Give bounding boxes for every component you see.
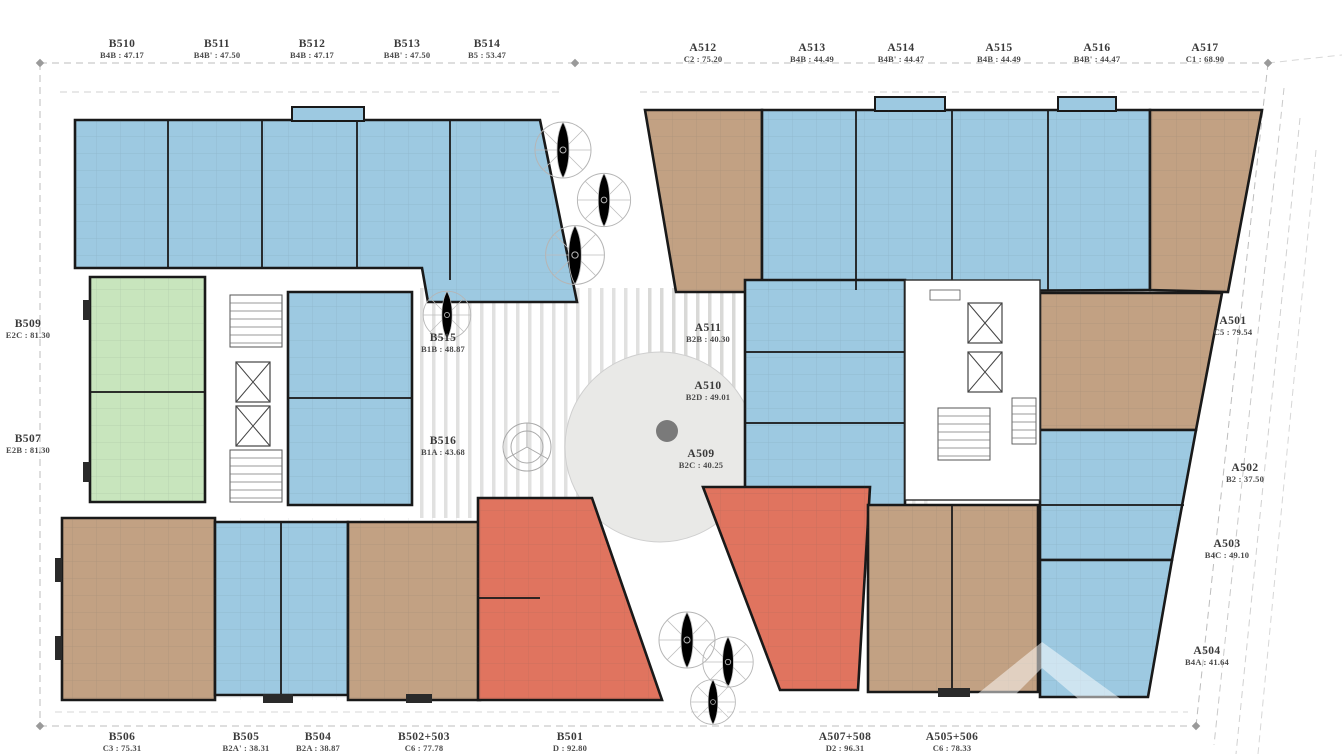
unit-id: B510: [100, 38, 144, 51]
unit-id: B512: [290, 38, 334, 51]
unit-id: B511: [194, 38, 241, 51]
unit-id: A514: [878, 42, 925, 55]
right-core: [905, 280, 1040, 500]
unit-id: A511: [686, 322, 730, 335]
unit-label-b515: B515 B1B : 48.87: [421, 332, 465, 354]
unit-id: A513: [790, 42, 834, 55]
unit-spec: B2B : 40.30: [686, 335, 730, 345]
unit-label-b505: B505 B2A' : 38.31: [222, 731, 269, 753]
unit-id: B516: [421, 435, 465, 448]
unit-id: A516: [1074, 42, 1121, 55]
unit-spec: B1B : 48.87: [421, 345, 465, 355]
unit-spec: C6 : 78.33: [926, 744, 979, 754]
unit-label-b512: B512 B4B : 47.17: [290, 38, 334, 60]
unit-spec: B2D : 49.01: [686, 393, 730, 403]
unit-label-a509: A509 B2C : 40.25: [679, 448, 723, 470]
unit-label-b510: B510 B4B : 47.17: [100, 38, 144, 60]
unit-label-b504: B504 B2A : 38.87: [296, 731, 340, 753]
unit-label-a511: A511 B2B : 40.30: [686, 322, 730, 344]
unit-label-a517: A517 C1 : 68.90: [1186, 42, 1225, 64]
balcony-bump: [292, 107, 364, 121]
unit-id: A503: [1205, 538, 1249, 551]
unit-spec: B2A' : 38.31: [222, 744, 269, 754]
unit-spec: B4B' : 47.50: [384, 51, 431, 61]
unit-spec: B4B' : 44.47: [1074, 55, 1121, 65]
balcony-bump: [875, 97, 945, 111]
unit-label-a502: A502 B2 : 37.50: [1226, 462, 1264, 484]
unit-label-b506: B506 C3 : 75.31: [103, 731, 142, 753]
unit-spec: B2 : 37.50: [1226, 475, 1264, 485]
plaza-dot: [656, 420, 678, 442]
floor-plan-canvas: B510 B4B : 47.17 B511 B4B' : 47.50 B512 …: [0, 0, 1342, 754]
unit-label-a510: A510 B2D : 49.01: [686, 380, 730, 402]
balcony-bump: [1058, 97, 1116, 111]
unit-id: B502+503: [398, 731, 450, 744]
unit-label-b509: B509 E2C : 81.30: [6, 318, 50, 340]
unit-spec: C5 : 79.54: [1214, 328, 1253, 338]
unit-label-b514: B514 B5 : 53.47: [468, 38, 506, 60]
unit-id: A517: [1186, 42, 1225, 55]
unit-id: A504: [1185, 645, 1229, 658]
unit-spec: C6 : 77.78: [398, 744, 450, 754]
left-core: [230, 295, 282, 502]
unit-id: A510: [686, 380, 730, 393]
unit-id: A505+506: [926, 731, 979, 744]
unit-id: A501: [1214, 315, 1253, 328]
unit-spec: B4B' : 47.50: [194, 51, 241, 61]
unit-spec: B2C : 40.25: [679, 461, 723, 471]
unit-id: B513: [384, 38, 431, 51]
unit-id: A512: [684, 42, 723, 55]
unit-spec: C3 : 75.31: [103, 744, 142, 754]
unit-spec: C2 : 75.20: [684, 55, 723, 65]
unit-label-b516: B516 B1A : 43.68: [421, 435, 465, 457]
unit-spec: B5 : 53.47: [468, 51, 506, 61]
unit-label-b501: B501 D : 92.80: [553, 731, 587, 753]
unit-label-a501: A501 C5 : 79.54: [1214, 315, 1253, 337]
unit-label-b513: B513 B4B' : 47.50: [384, 38, 431, 60]
unit-spec: E2B : 81.30: [6, 446, 50, 456]
unit-id: B505: [222, 731, 269, 744]
unit-spec: B4B : 47.17: [290, 51, 334, 61]
unit-id: A515: [977, 42, 1021, 55]
unit-label-a503: A503 B4C : 49.10: [1205, 538, 1249, 560]
floor-plan-drawing: [0, 0, 1342, 754]
unit-spec: B4C : 49.10: [1205, 551, 1249, 561]
unit-label-b502-503: B502+503 C6 : 77.78: [398, 731, 450, 753]
unit-id: A507+508: [819, 731, 872, 744]
unit-label-a504: A504 B4A : 41.64: [1185, 645, 1229, 667]
unit-id: A509: [679, 448, 723, 461]
unit-spec: B4B : 44.49: [977, 55, 1021, 65]
unit-spec: B4A : 41.64: [1185, 658, 1229, 668]
unit-spec: B4B' : 44.47: [878, 55, 925, 65]
unit-id: B506: [103, 731, 142, 744]
unit-label-a513: A513 B4B : 44.49: [790, 42, 834, 64]
unit-id: B515: [421, 332, 465, 345]
unit-spec: B2A : 38.87: [296, 744, 340, 754]
unit-label-a505-506: A505+506 C6 : 78.33: [926, 731, 979, 753]
unit-id: A502: [1226, 462, 1264, 475]
unit-id: B514: [468, 38, 506, 51]
unit-id: B501: [553, 731, 587, 744]
unit-id: B509: [6, 318, 50, 331]
unit-id: B504: [296, 731, 340, 744]
unit-label-b507: B507 E2B : 81.30: [6, 433, 50, 455]
unit-spec: D : 92.80: [553, 744, 587, 754]
unit-spec: B1A : 43.68: [421, 448, 465, 458]
unit-label-b511: B511 B4B' : 47.50: [194, 38, 241, 60]
unit-spec: B4B : 44.49: [790, 55, 834, 65]
unit-spec: B4B : 47.17: [100, 51, 144, 61]
unit-id: B507: [6, 433, 50, 446]
unit-spec: C1 : 68.90: [1186, 55, 1225, 65]
unit-spec: D2 : 96.31: [819, 744, 872, 754]
unit-label-a507-508: A507+508 D2 : 96.31: [819, 731, 872, 753]
unit-label-a516: A516 B4B' : 44.47: [1074, 42, 1121, 64]
unit-label-a512: A512 C2 : 75.20: [684, 42, 723, 64]
unit-label-a514: A514 B4B' : 44.47: [878, 42, 925, 64]
unit-spec: E2C : 81.30: [6, 331, 50, 341]
unit-label-a515: A515 B4B : 44.49: [977, 42, 1021, 64]
